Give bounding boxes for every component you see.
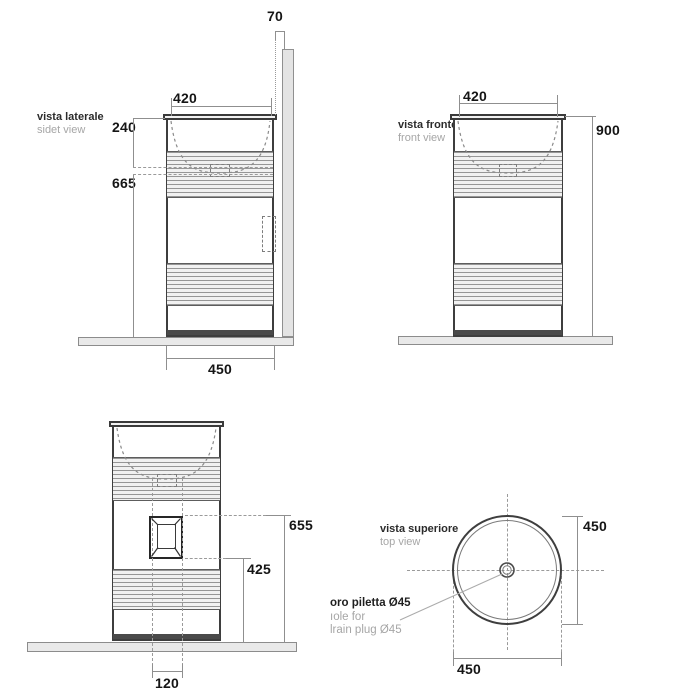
back-view-floor bbox=[27, 642, 297, 652]
front-view-floor bbox=[398, 336, 613, 345]
side-dim-top-width-line bbox=[171, 106, 271, 107]
back-dim-niche-bottom-tick bbox=[226, 558, 251, 559]
top-dim-right-line bbox=[577, 516, 578, 624]
back-dim-niche-bottom-line bbox=[243, 558, 244, 643]
side-dim-base-tick-right bbox=[274, 346, 275, 370]
top-dim-bottom-extension-left bbox=[453, 576, 454, 662]
front-view-label-english: front view bbox=[398, 132, 445, 145]
technical-drawing-canvas: vista laterale sidet view 70 420 240 665… bbox=[0, 0, 700, 700]
side-basin-bottom-level-line bbox=[133, 167, 273, 168]
drawing-curves-overlay bbox=[0, 0, 700, 700]
side-dim-under-basin: 665 bbox=[103, 176, 136, 190]
top-view-centerline-vertical bbox=[507, 494, 508, 650]
back-view-barrel-base bbox=[113, 634, 220, 639]
side-dim-base-line bbox=[166, 358, 274, 359]
back-view-drain-dashed-rect bbox=[157, 474, 177, 487]
back-dim-width-line bbox=[152, 671, 182, 672]
side-dim-basin-depth-tick-top bbox=[133, 118, 165, 119]
side-dim-wall-offset-line bbox=[275, 31, 284, 32]
side-view-barrel-base bbox=[167, 330, 273, 335]
side-view-label-english: sidet view bbox=[37, 124, 85, 137]
top-view-centerline-horizontal bbox=[407, 570, 604, 571]
back-view-barrel-rim bbox=[109, 421, 224, 427]
side-dim-wall-offset-extension bbox=[275, 40, 276, 115]
front-dim-height-line bbox=[592, 116, 593, 336]
back-dim-niche-width: 120 bbox=[147, 676, 187, 690]
front-dim-top-width-tick-right bbox=[557, 95, 558, 117]
back-dim-niche-top-tick bbox=[266, 515, 291, 516]
side-view-barrel-rim bbox=[163, 114, 277, 120]
front-dim-top-width-line bbox=[459, 103, 557, 104]
top-dim-diameter-right: 450 bbox=[583, 519, 607, 533]
top-dim-bottom-tick-right bbox=[561, 652, 562, 666]
drain-note-line1: oro piletta Ø45 bbox=[330, 597, 411, 610]
top-view-label-italian: vista superiore bbox=[380, 523, 458, 536]
back-dim-width-extension-left bbox=[152, 478, 153, 666]
side-view-wall-outlet-dashed-rect bbox=[262, 216, 276, 252]
back-view-lower-ribs bbox=[113, 569, 220, 610]
back-view-niche-inner bbox=[157, 524, 176, 549]
front-view-drain-dashed-rect bbox=[499, 164, 517, 177]
back-dim-niche-bottom-extension bbox=[185, 558, 226, 559]
drain-note-leader-line bbox=[400, 574, 502, 620]
side-dim-wall-offset: 70 bbox=[262, 9, 288, 23]
side-under-basin-level-line bbox=[133, 174, 273, 175]
side-view-barrel bbox=[166, 115, 274, 337]
front-dim-top-width-tick-left bbox=[459, 95, 460, 117]
front-view-label-italian: vista fronte bbox=[398, 119, 457, 132]
back-dim-width-extension-right bbox=[182, 478, 183, 666]
top-dim-diameter-bottom: 450 bbox=[457, 662, 481, 676]
side-dim-wall-offset-tick-left bbox=[275, 31, 276, 40]
back-dim-niche-bottom: 425 bbox=[247, 562, 271, 576]
side-dim-wall-offset-tick-right bbox=[284, 31, 285, 49]
top-dim-bottom-tick-left bbox=[453, 652, 454, 666]
front-view-lower-ribs bbox=[454, 263, 562, 306]
side-view-drain-dashed-rect bbox=[210, 164, 230, 177]
side-dim-under-basin-line bbox=[133, 174, 134, 337]
top-dim-right-tick-top bbox=[562, 516, 583, 517]
side-view-lower-ribs bbox=[167, 263, 273, 306]
side-dim-top-width-tick-right bbox=[271, 98, 272, 116]
top-dim-bottom-extension-right bbox=[561, 576, 562, 662]
front-view-barrel-base bbox=[454, 330, 562, 335]
drain-note-line3: lrain plug Ø45 bbox=[330, 624, 402, 637]
back-dim-niche-top: 655 bbox=[289, 518, 313, 532]
front-dim-height: 900 bbox=[596, 123, 620, 137]
front-view-barrel-rim bbox=[450, 114, 566, 120]
back-dim-niche-top-extension bbox=[185, 515, 266, 516]
front-view-barrel bbox=[453, 115, 563, 337]
top-dim-right-tick-bottom bbox=[562, 624, 583, 625]
side-dim-basin-depth: 240 bbox=[103, 120, 136, 134]
top-dim-bottom-line bbox=[453, 658, 561, 659]
front-dim-top-width: 420 bbox=[463, 89, 487, 103]
side-dim-top-width: 420 bbox=[173, 91, 197, 105]
back-dim-niche-top-line bbox=[284, 515, 285, 643]
side-view-wall bbox=[282, 49, 294, 337]
side-dim-base-width: 450 bbox=[166, 362, 274, 376]
side-view-floor bbox=[78, 337, 294, 346]
side-dim-basin-depth-line bbox=[133, 118, 134, 167]
side-dim-top-width-tick-left bbox=[171, 98, 172, 116]
top-view-label-english: top view bbox=[380, 536, 420, 549]
side-view-label-italian: vista laterale bbox=[37, 111, 104, 124]
drain-note-line2: ıole for bbox=[330, 611, 365, 624]
